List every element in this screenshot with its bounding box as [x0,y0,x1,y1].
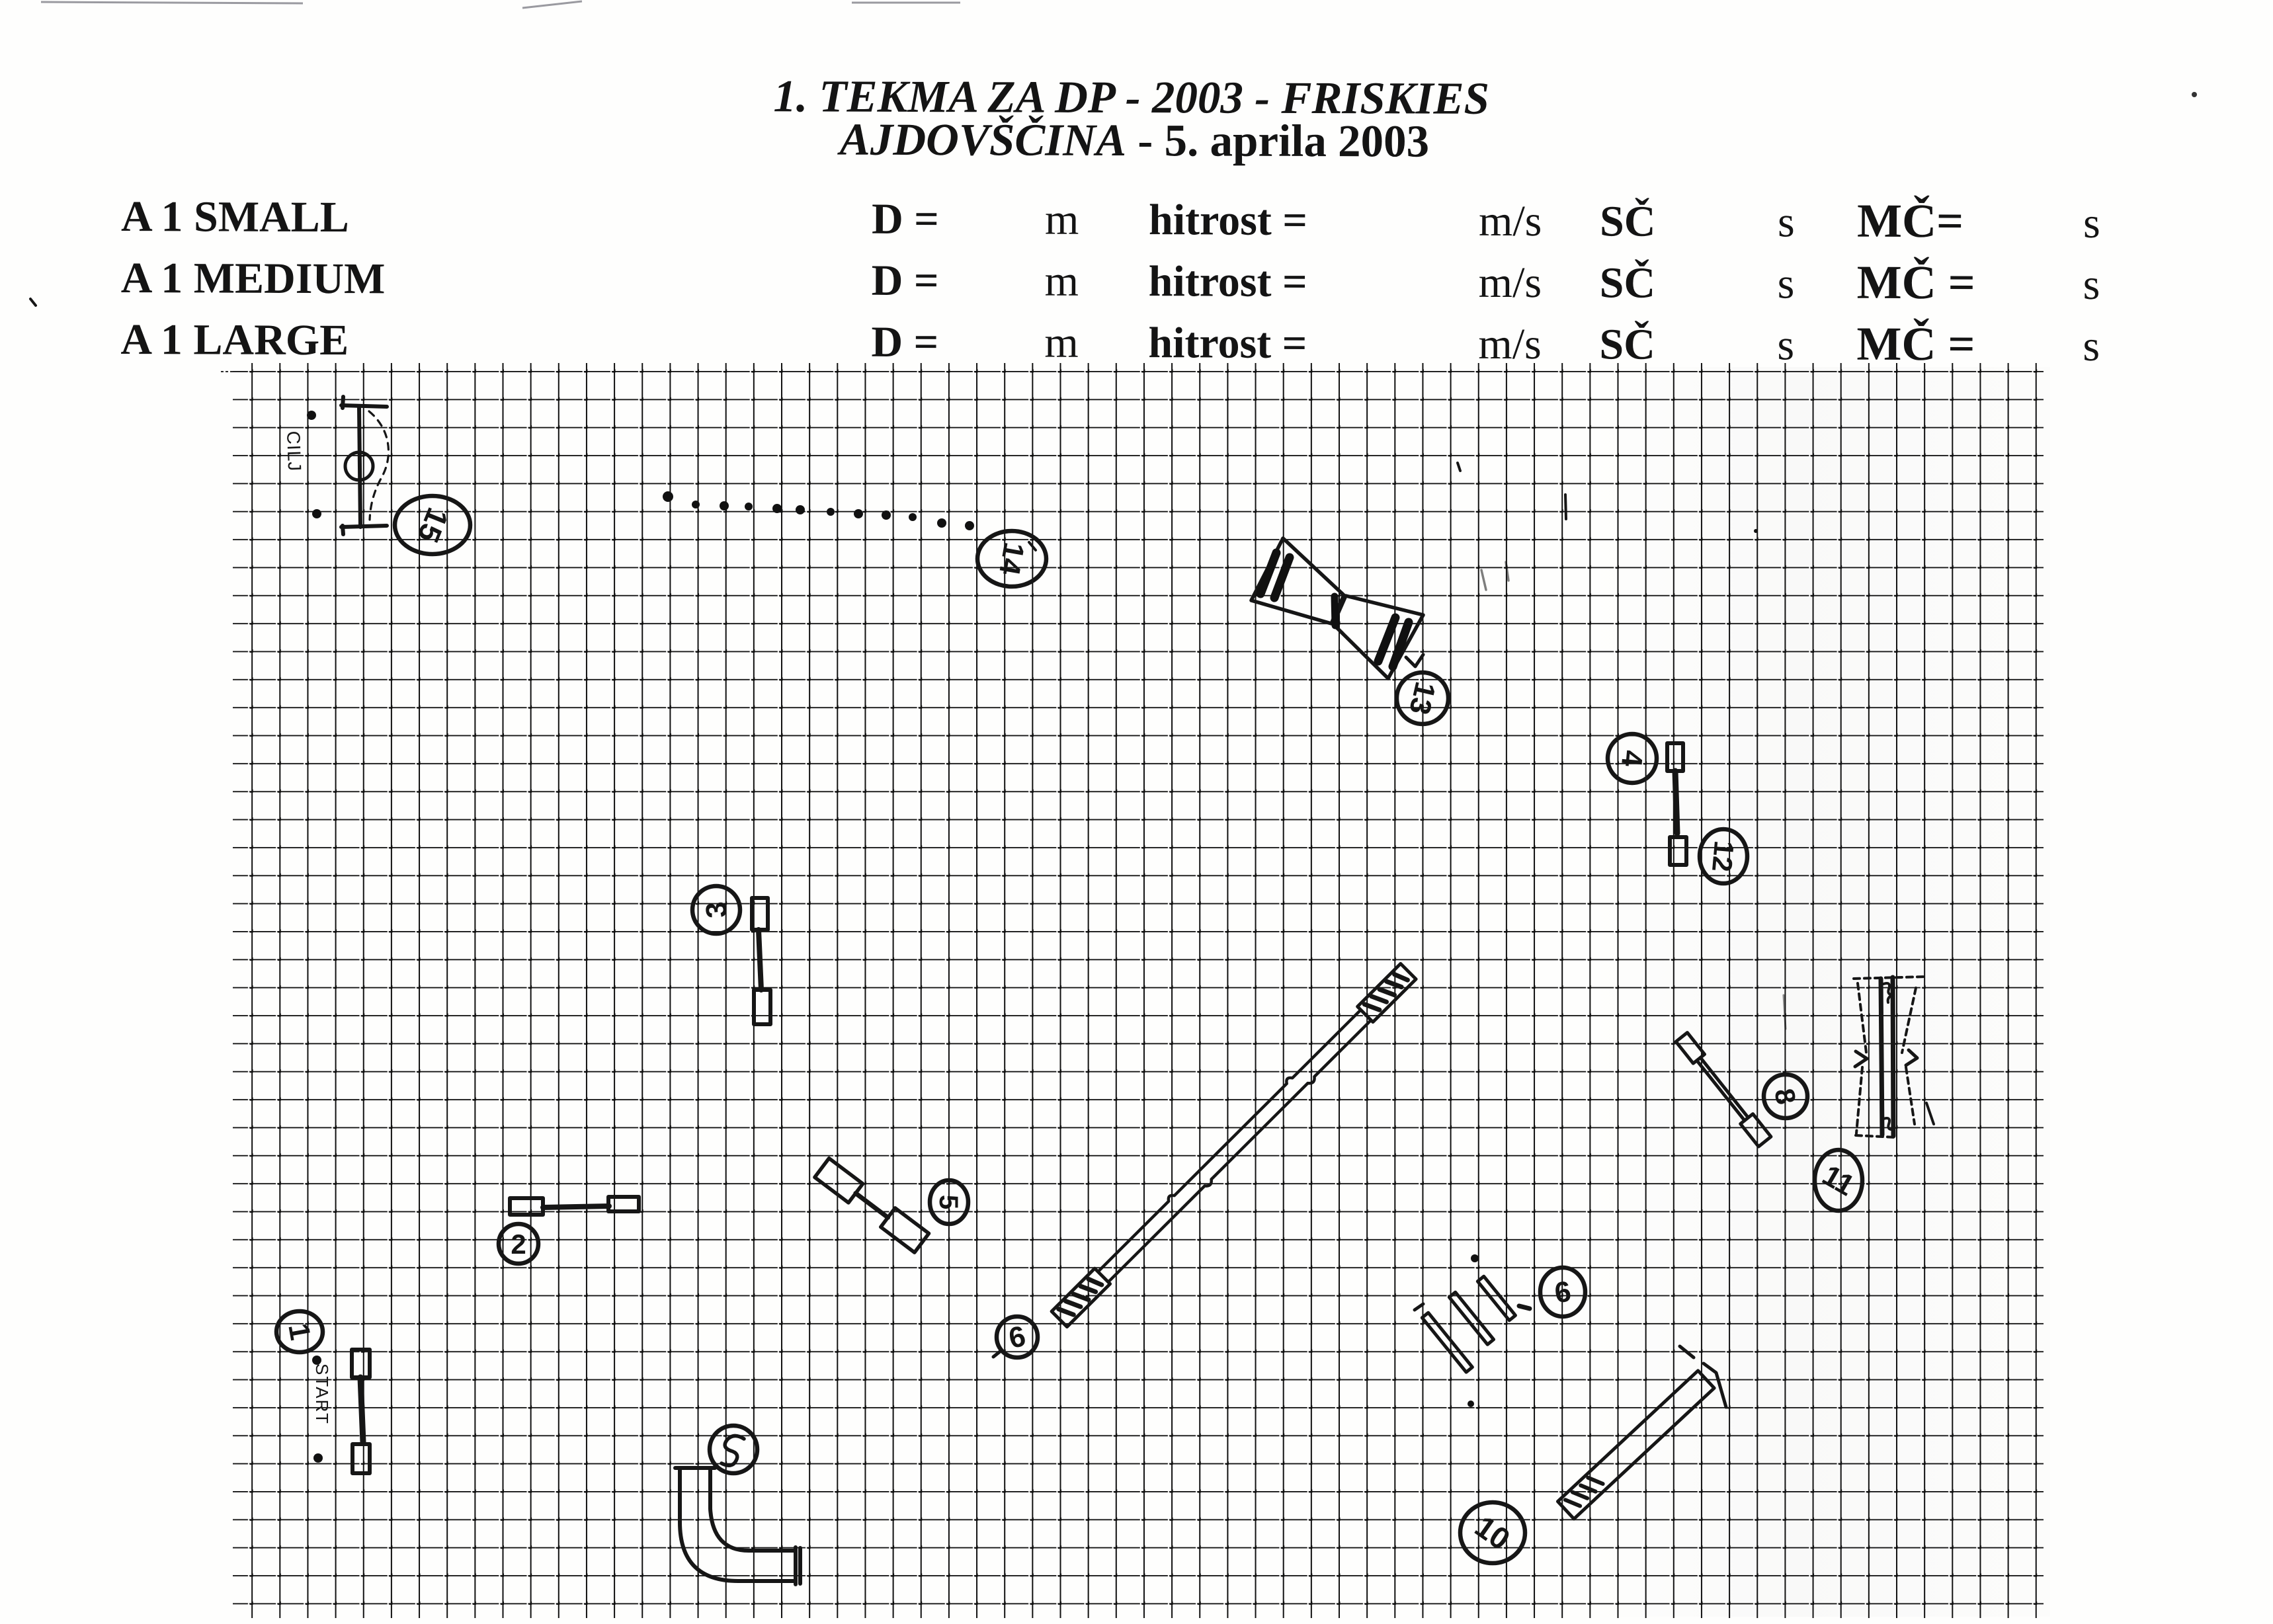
svg-text:m/s: m/s [1479,197,1542,245]
svg-text:5: 5 [934,1195,963,1209]
svg-text:A 1 LARGE: A 1 LARGE [120,315,349,364]
svg-text:2: 2 [511,1229,526,1260]
svg-text:14: 14 [993,540,1030,578]
svg-text:m/s: m/s [1478,320,1542,368]
svg-text:s: s [1777,321,1794,369]
svg-text:MČ =: MČ = [1856,317,1975,371]
svg-text:m/s: m/s [1479,259,1542,307]
svg-text:D =: D = [871,318,938,366]
svg-text:hitrost =: hitrost = [1148,319,1307,368]
svg-text:m: m [1044,319,1079,367]
svg-text:12: 12 [1706,840,1740,873]
svg-text:s: s [2083,322,2100,370]
svg-text:hitrost =: hitrost = [1149,196,1307,245]
svg-text:START: START [312,1363,332,1425]
svg-text:s: s [2083,261,2100,309]
svg-text:SČ: SČ [1600,259,1656,307]
svg-text:AJDOVŠČINA - 5. aprila 2003: AJDOVŠČINA - 5. aprila 2003 [837,114,1430,167]
svg-text:D =: D = [872,257,939,305]
svg-text:A 1 MEDIUM: A 1 MEDIUM [121,254,386,303]
svg-text:D =: D = [872,195,939,243]
svg-text:A 1 SMALL: A 1 SMALL [121,192,349,241]
svg-text:s: s [2083,199,2100,247]
svg-text:4: 4 [1615,749,1649,768]
svg-text:MČ =: MČ = [1857,256,1975,309]
svg-text:SČ: SČ [1600,197,1656,245]
svg-text:MČ=: MČ= [1857,194,1963,248]
svg-text:s: s [1778,259,1795,307]
svg-text:3: 3 [700,901,733,920]
svg-text:SČ: SČ [1599,320,1655,368]
svg-text:s: s [1778,198,1795,246]
svg-text:m: m [1045,257,1079,305]
svg-text:CILJ: CILJ [283,430,305,472]
svg-text:m: m [1045,196,1079,244]
svg-text:hitrost =: hitrost = [1149,257,1307,306]
